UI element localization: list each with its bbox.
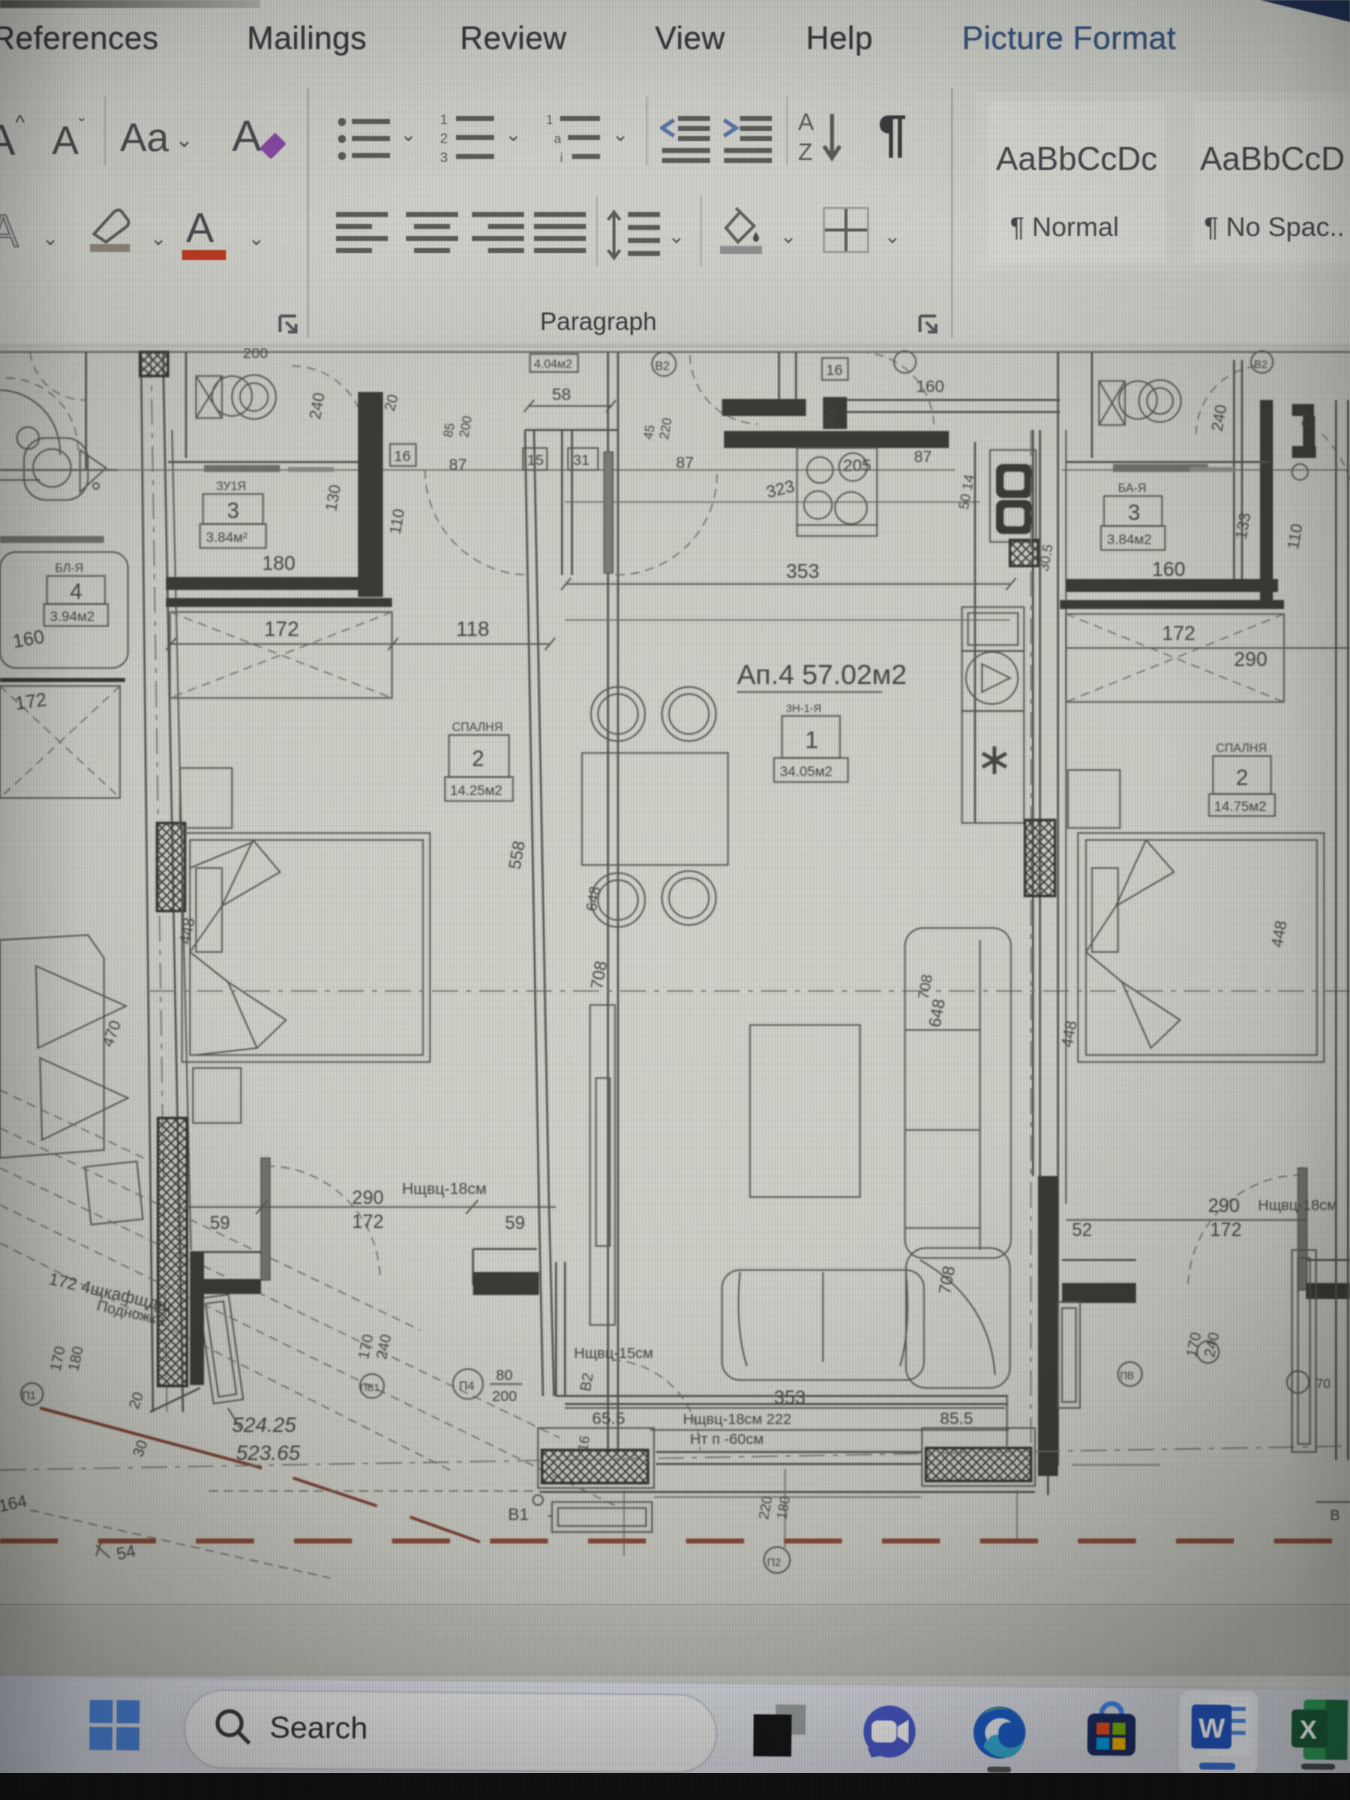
svg-text:Z: Z bbox=[798, 139, 813, 166]
svg-text:2: 2 bbox=[440, 130, 448, 146]
svg-text:52: 52 bbox=[1072, 1220, 1092, 1240]
svg-text:16: 16 bbox=[394, 448, 411, 465]
svg-text:СПАЛНЯ: СПАЛНЯ bbox=[1216, 741, 1267, 755]
svg-text:85: 85 bbox=[440, 422, 457, 439]
svg-text:523.65: 523.65 bbox=[236, 1442, 301, 1465]
svg-text:В2: В2 bbox=[1254, 359, 1267, 371]
svg-text:В: В bbox=[1330, 1507, 1340, 1524]
svg-text:ЗУ1Я: ЗУ1Я bbox=[216, 479, 246, 493]
svg-text:290: 290 bbox=[1208, 1196, 1240, 1217]
svg-text:58: 58 bbox=[552, 385, 571, 404]
svg-text:87: 87 bbox=[914, 449, 932, 466]
svg-text:16: 16 bbox=[826, 362, 843, 379]
svg-text:205: 205 bbox=[843, 456, 871, 475]
svg-text:87: 87 bbox=[449, 457, 467, 474]
svg-text:3: 3 bbox=[440, 149, 448, 165]
svg-text:2: 2 bbox=[472, 746, 484, 771]
svg-text:54: 54 bbox=[115, 1541, 137, 1564]
svg-text:1: 1 bbox=[440, 111, 448, 127]
svg-text:180: 180 bbox=[262, 553, 295, 575]
svg-text:Нщвц-18см: Нщвц-18см bbox=[402, 1181, 487, 1198]
svg-text:31: 31 bbox=[573, 452, 590, 469]
svg-text:3.94м2: 3.94м2 bbox=[50, 608, 95, 624]
svg-text:16: 16 bbox=[574, 1434, 592, 1452]
svg-text:353: 353 bbox=[786, 561, 819, 583]
svg-text:59: 59 bbox=[210, 1213, 230, 1233]
svg-text:ПВ1: ПВ1 bbox=[360, 1383, 380, 1394]
svg-text:3: 3 bbox=[1128, 500, 1140, 525]
svg-text:15: 15 bbox=[527, 452, 544, 469]
svg-text:W: W bbox=[1198, 1713, 1225, 1744]
svg-text:БА-Я: БА-Я bbox=[1118, 481, 1146, 495]
svg-text:Нт п -60см: Нт п -60см bbox=[690, 1431, 764, 1448]
svg-text:85.5: 85.5 bbox=[940, 1409, 973, 1428]
svg-text:290: 290 bbox=[352, 1188, 384, 1209]
svg-text:1: 1 bbox=[805, 727, 818, 754]
svg-text:172: 172 bbox=[1210, 1220, 1242, 1241]
svg-text:3: 3 bbox=[227, 498, 239, 523]
svg-text:СПАЛНЯ: СПАЛНЯ bbox=[452, 720, 503, 734]
svg-text:4: 4 bbox=[70, 579, 82, 604]
svg-text:П4: П4 bbox=[459, 1379, 475, 1393]
svg-text:34.05м2: 34.05м2 bbox=[780, 763, 833, 779]
svg-text:3.84м2: 3.84м2 bbox=[1107, 531, 1152, 547]
svg-text:В2: В2 bbox=[577, 1372, 597, 1393]
svg-text:118: 118 bbox=[456, 618, 489, 641]
svg-text:200: 200 bbox=[492, 1388, 517, 1405]
svg-text:172: 172 bbox=[1162, 623, 1195, 645]
svg-text:160: 160 bbox=[916, 377, 944, 396]
svg-text:1: 1 bbox=[546, 112, 553, 127]
svg-text:∗: ∗ bbox=[976, 735, 1013, 784]
svg-text:87: 87 bbox=[676, 455, 694, 472]
svg-text:Ап.4 57.02м2: Ап.4 57.02м2 bbox=[737, 659, 907, 690]
svg-text:200: 200 bbox=[243, 348, 268, 362]
svg-text:65.5: 65.5 bbox=[592, 1409, 625, 1428]
svg-text:X: X bbox=[1299, 1714, 1317, 1744]
svg-text:59: 59 bbox=[505, 1213, 525, 1233]
svg-text:В1: В1 bbox=[508, 1505, 529, 1524]
svg-text:БЛ-Я: БЛ-Я bbox=[55, 561, 83, 575]
svg-text:П1: П1 bbox=[22, 1390, 36, 1402]
svg-text:ПВ: ПВ bbox=[1120, 1371, 1134, 1382]
svg-text:14.75м2: 14.75м2 bbox=[1214, 798, 1267, 814]
svg-text:i: i bbox=[560, 150, 563, 165]
svg-text:45: 45 bbox=[640, 424, 657, 441]
svg-text:290: 290 bbox=[1234, 649, 1267, 671]
svg-text:23: 23 bbox=[1298, 412, 1315, 429]
svg-text:Нщвц-18см 222: Нщвц-18см 222 bbox=[683, 1411, 791, 1428]
svg-text:172: 172 bbox=[14, 690, 48, 715]
svg-text:524.25: 524.25 bbox=[232, 1414, 297, 1437]
svg-text:3.84м²: 3.84м² bbox=[206, 529, 248, 545]
svg-text:A: A bbox=[798, 109, 814, 136]
svg-text:Нщвц-15см: Нщвц-15см bbox=[574, 1345, 653, 1362]
svg-text:80: 80 bbox=[496, 1367, 513, 1384]
svg-text:П2: П2 bbox=[767, 1557, 781, 1569]
svg-text:3Н-1-Я: 3Н-1-Я bbox=[786, 703, 822, 715]
svg-text:14.25м2: 14.25м2 bbox=[450, 782, 503, 798]
svg-text:2: 2 bbox=[1236, 765, 1248, 790]
svg-text:4.04м2: 4.04м2 bbox=[534, 357, 573, 371]
svg-text:172: 172 bbox=[352, 1212, 384, 1233]
svg-text:172: 172 bbox=[264, 618, 299, 641]
svg-text:160: 160 bbox=[1152, 559, 1185, 581]
svg-text:Нщвц-18см: Нщвц-18см bbox=[1258, 1197, 1337, 1214]
svg-text:a: a bbox=[554, 131, 562, 146]
svg-text:70: 70 bbox=[1316, 1376, 1330, 1391]
svg-text:353: 353 bbox=[774, 1388, 806, 1409]
svg-text:В2: В2 bbox=[655, 359, 670, 373]
